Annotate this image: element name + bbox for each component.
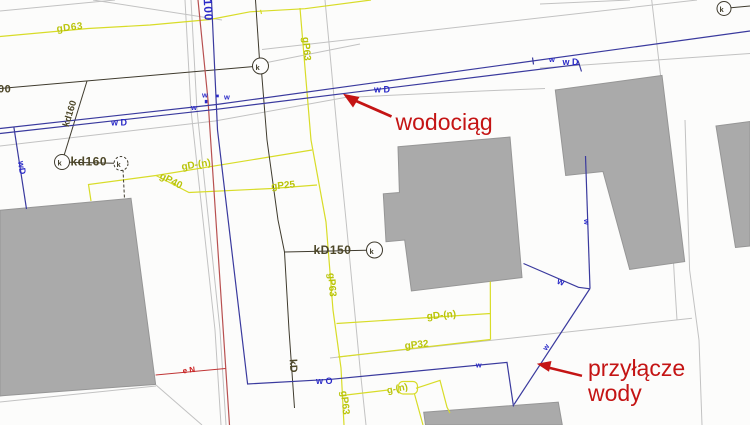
svg-text:kD150: kD150	[314, 243, 352, 257]
svg-text:w D: w D	[562, 57, 580, 67]
svg-text:00: 00	[0, 84, 11, 96]
svg-text:100: 100	[201, 0, 216, 22]
svg-text:wody: wody	[587, 380, 642, 406]
svg-text:wD: wD	[16, 159, 28, 175]
svg-text:gP63: gP63	[300, 37, 313, 62]
svg-text:kD: kD	[287, 359, 300, 374]
svg-text:w: w	[223, 92, 230, 101]
svg-text:w: w	[201, 90, 208, 99]
svg-text:gP63: gP63	[325, 273, 338, 298]
svg-text:w D: w D	[373, 85, 391, 95]
svg-text:e N: e N	[182, 365, 196, 375]
svg-text:wodociąg: wodociąg	[395, 109, 493, 135]
svg-text:w O: w O	[315, 376, 333, 386]
svg-text:kd160: kd160	[71, 155, 108, 169]
svg-text:w: w	[190, 103, 197, 112]
svg-text:w: w	[475, 360, 482, 369]
svg-text:w: w	[548, 55, 555, 64]
svg-text:przyłącze: przyłącze	[588, 355, 685, 381]
svg-text:w: w	[582, 218, 591, 225]
svg-text:gP25: gP25	[271, 179, 296, 192]
svg-text:w D: w D	[110, 118, 128, 128]
